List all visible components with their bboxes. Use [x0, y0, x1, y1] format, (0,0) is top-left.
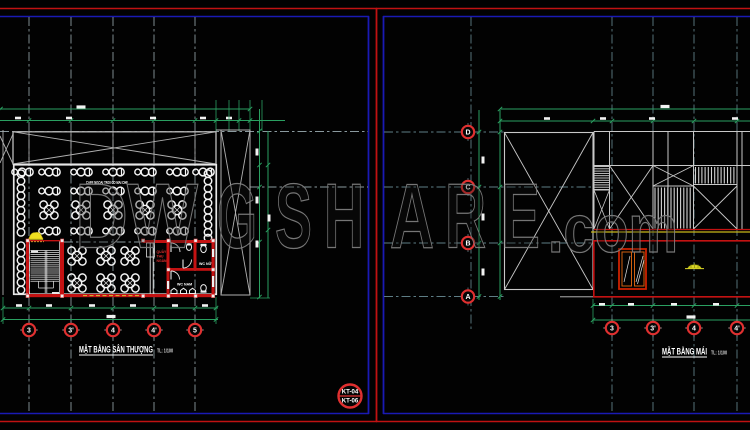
svg-text:WC NAM: WC NAM	[177, 283, 192, 287]
svg-text:4: 4	[111, 327, 115, 334]
svg-text:3': 3'	[650, 325, 656, 332]
svg-text:R: R	[445, 166, 486, 268]
svg-text:W: W	[127, 166, 198, 268]
svg-text:G: G	[217, 166, 257, 268]
svg-text:.com: .com	[548, 191, 678, 267]
svg-text:5: 5	[193, 327, 197, 334]
svg-text:A: A	[390, 166, 434, 268]
svg-text:S: S	[275, 166, 312, 268]
svg-text:TL: 1/100: TL: 1/100	[711, 351, 727, 357]
svg-text:4': 4'	[734, 325, 740, 332]
svg-text:MẶT BẰNG MÁI: MẶT BẰNG MÁI	[662, 347, 707, 358]
svg-text:A: A	[465, 294, 470, 301]
svg-text:KT-04: KT-04	[342, 389, 359, 396]
svg-text:WC NỮ: WC NỮ	[199, 261, 212, 266]
svg-text:4: 4	[692, 325, 696, 332]
svg-text:3: 3	[27, 327, 31, 334]
svg-text:E: E	[501, 166, 540, 268]
svg-text:TL: 1/100: TL: 1/100	[157, 349, 173, 355]
svg-text:H: H	[324, 166, 364, 268]
svg-text:D: D	[465, 130, 470, 137]
svg-text:MẶT BẰNG SÂN THƯỢNG: MẶT BẰNG SÂN THƯỢNG	[79, 344, 153, 356]
svg-text:KT-06: KT-06	[342, 398, 359, 405]
svg-text:3: 3	[610, 325, 614, 332]
svg-text:4': 4'	[151, 327, 157, 334]
svg-text:3': 3'	[68, 327, 74, 334]
svg-text:D: D	[75, 166, 128, 268]
